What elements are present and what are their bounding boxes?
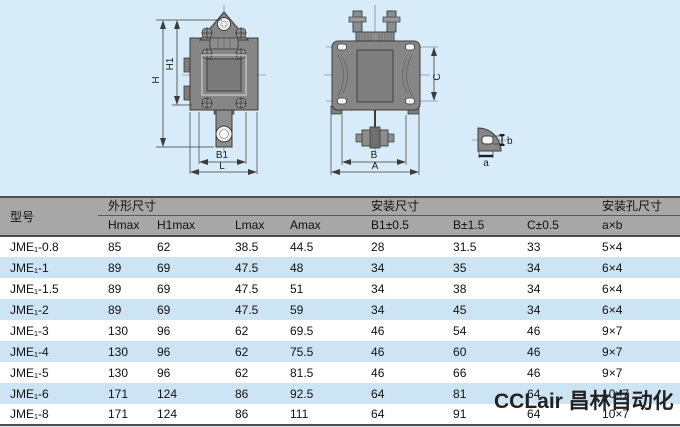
model-cell: JME₁-1.5: [0, 278, 98, 299]
value-cell: 171: [98, 404, 147, 425]
value-cell: 47.5: [225, 278, 280, 299]
front-view-drawing: H H1 B1 L: [151, 5, 266, 174]
value-cell: 38.5: [225, 236, 280, 257]
value-cell: 6×4: [592, 299, 680, 320]
model-column-header: 型号: [0, 197, 98, 236]
value-cell: 9×7: [592, 341, 680, 362]
value-cell: 34: [361, 299, 443, 320]
value-cell: 92.5: [280, 383, 361, 404]
value-cell: 124: [147, 383, 225, 404]
value-cell: 9×7: [592, 362, 680, 383]
value-cell: 62: [225, 362, 280, 383]
value-cell: 66: [443, 362, 517, 383]
value-cell: 54: [443, 320, 517, 341]
value-cell: 38: [443, 278, 517, 299]
value-cell: 89: [98, 278, 147, 299]
value-cell: 171: [98, 383, 147, 404]
model-cell: JME₁-8: [0, 404, 98, 425]
dim-label-c: C: [432, 73, 443, 80]
model-cell: JME₁-1: [0, 257, 98, 278]
group-header-mounting-hole-dims: 安装孔尺寸: [592, 197, 680, 215]
col-header-c: C±0.5: [517, 215, 592, 236]
group-header-mounting-dims: 安装尺寸: [361, 197, 592, 215]
value-cell: 86: [225, 383, 280, 404]
value-cell: 69.5: [280, 320, 361, 341]
value-cell: 59: [280, 299, 361, 320]
technical-drawings: H H1 B1 L: [0, 0, 680, 192]
side-coil: [357, 50, 393, 102]
slot-hole: [482, 136, 493, 144]
apex-hole: [218, 18, 231, 31]
dim-label-b1: B1: [216, 150, 229, 161]
mount-hole-br: [406, 98, 415, 104]
terminal-strip: [356, 32, 394, 41]
value-cell: 46: [517, 320, 592, 341]
value-cell: 46: [361, 362, 443, 383]
side-view-drawing: C B A: [324, 5, 443, 175]
table-row: JME₁-4 130 96 62 75.5 46 60 46 9×7: [0, 341, 680, 362]
value-cell: 64: [361, 404, 443, 425]
value-cell: 60: [443, 341, 517, 362]
table-row: JME₁-1.5 89 69 47.5 51 34 38 34 6×4: [0, 278, 680, 299]
value-cell: 96: [147, 320, 225, 341]
model-cell: JME₁-4: [0, 341, 98, 362]
value-cell: 96: [147, 341, 225, 362]
header-sub-row: Hmax H1max Lmax Amax B1±0.5 B±1.5 C±0.5 …: [0, 215, 680, 236]
datasheet-page: H H1 B1 L: [0, 0, 680, 427]
value-cell: 81.5: [280, 362, 361, 383]
coil-window: [207, 59, 241, 91]
col-header-lmax: Lmax: [225, 215, 280, 236]
front-left-tab-upper: [184, 58, 190, 72]
value-cell: 34: [517, 278, 592, 299]
model-cell: JME₁-2: [0, 299, 98, 320]
value-cell: 89: [98, 257, 147, 278]
value-cell: 48: [280, 257, 361, 278]
value-cell: 96: [147, 362, 225, 383]
value-cell: 69: [147, 257, 225, 278]
model-cell: JME₁-0.8: [0, 236, 98, 257]
brand-watermark: CCLair 昌林自动化: [494, 385, 674, 415]
group-header-outline-dims: 外形尺寸: [98, 197, 361, 215]
value-cell: 28: [361, 236, 443, 257]
table-row: JME₁-0.8 85 62 38.5 44.5 28 31.5 33 5×4: [0, 236, 680, 257]
table-row: JME₁-1 89 69 47.5 48 34 35 34 6×4: [0, 257, 680, 278]
value-cell: 5×4: [592, 236, 680, 257]
value-cell: 46: [517, 341, 592, 362]
value-cell: 130: [98, 341, 147, 362]
value-cell: 47.5: [225, 257, 280, 278]
value-cell: 34: [361, 278, 443, 299]
value-cell: 47.5: [225, 299, 280, 320]
value-cell: 62: [225, 320, 280, 341]
col-header-b1: B1±0.5: [361, 215, 443, 236]
value-cell: 130: [98, 320, 147, 341]
col-header-h1max: H1max: [147, 215, 225, 236]
dim-label-hole-a: a: [483, 158, 489, 169]
value-cell: 62: [225, 341, 280, 362]
value-cell: 31.5: [443, 236, 517, 257]
col-header-amax: Amax: [280, 215, 361, 236]
mount-hole-tl: [338, 44, 347, 50]
value-cell: 35: [443, 257, 517, 278]
header-group-row: 型号 外形尺寸 安装尺寸 安装孔尺寸: [0, 197, 680, 215]
value-cell: 44.5: [280, 236, 361, 257]
value-cell: 34: [361, 257, 443, 278]
dim-label-l: L: [219, 161, 225, 172]
dim-label-hole-b: b: [507, 136, 513, 147]
col-header-hmax: Hmax: [98, 215, 147, 236]
value-cell: 33: [517, 236, 592, 257]
value-cell: 124: [147, 404, 225, 425]
dim-label-h: H: [151, 76, 162, 83]
col-header-b: B±1.5: [443, 215, 517, 236]
value-cell: 86: [225, 404, 280, 425]
value-cell: 46: [361, 341, 443, 362]
value-cell: 6×4: [592, 257, 680, 278]
value-cell: 64: [361, 383, 443, 404]
value-cell: 130: [98, 362, 147, 383]
table-row: JME₁-5 130 96 62 81.5 46 66 46 9×7: [0, 362, 680, 383]
value-cell: 69: [147, 278, 225, 299]
mounting-hole-detail-drawing: b a: [472, 128, 513, 169]
value-cell: 46: [361, 320, 443, 341]
table-row: JME₁-3 130 96 62 69.5 46 54 46 9×7: [0, 320, 680, 341]
value-cell: 45: [443, 299, 517, 320]
dim-label-a: A: [372, 161, 379, 172]
value-cell: 6×4: [592, 278, 680, 299]
mount-hole-bl: [338, 98, 347, 104]
front-left-tab-lower: [184, 86, 190, 100]
value-cell: 85: [98, 236, 147, 257]
table-row: JME₁-2 89 69 47.5 59 34 45 34 6×4: [0, 299, 680, 320]
col-header-axb: a×b: [592, 215, 680, 236]
value-cell: 51: [280, 278, 361, 299]
value-cell: 9×7: [592, 320, 680, 341]
dim-label-b: B: [371, 150, 378, 161]
value-cell: 69: [147, 299, 225, 320]
mount-hole-tr: [406, 44, 415, 50]
value-cell: 46: [517, 362, 592, 383]
value-cell: 75.5: [280, 341, 361, 362]
value-cell: 89: [98, 299, 147, 320]
value-cell: 34: [517, 299, 592, 320]
model-cell: JME₁-3: [0, 320, 98, 341]
value-cell: 62: [147, 236, 225, 257]
model-cell: JME₁-6: [0, 383, 98, 404]
model-cell: JME₁-5: [0, 362, 98, 383]
dim-label-h1: H1: [165, 57, 176, 70]
value-cell: 111: [280, 404, 361, 425]
value-cell: 34: [517, 257, 592, 278]
